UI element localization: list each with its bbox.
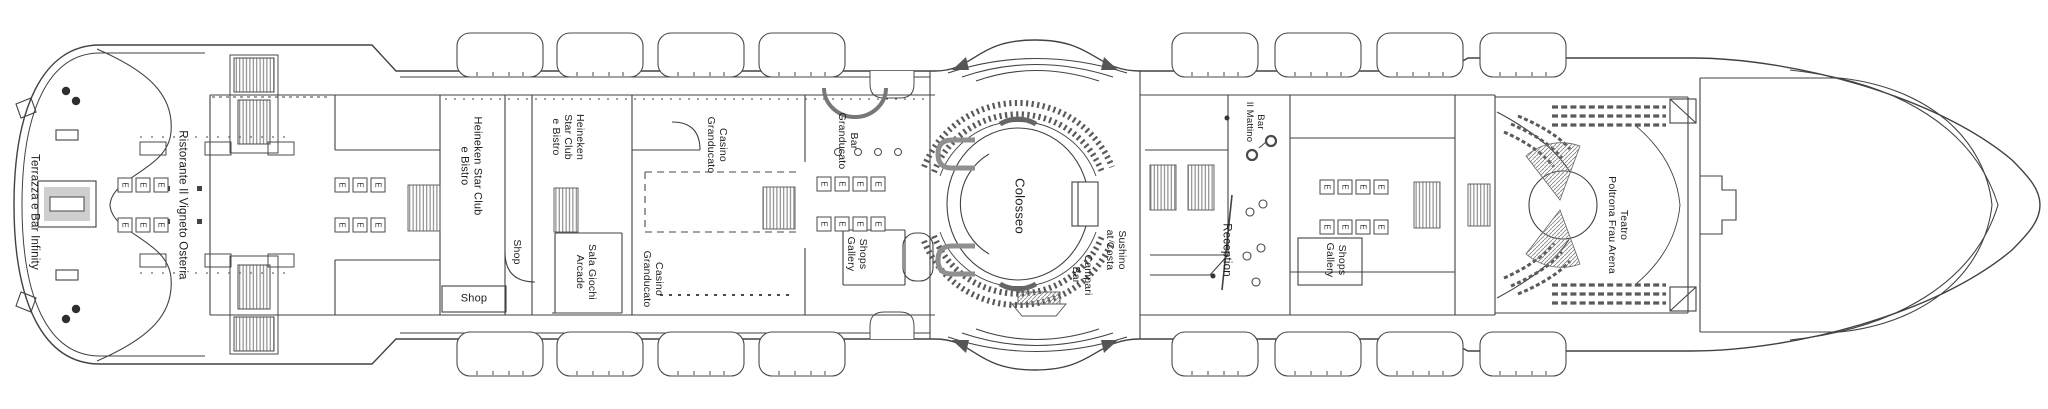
aft-terrace <box>16 49 171 361</box>
restaurant-tables <box>140 137 294 273</box>
lifeboats <box>457 33 1566 376</box>
interior-walls <box>210 71 1495 339</box>
reception-area <box>1211 116 1277 287</box>
deck-plan-drawing: E <box>0 0 2048 409</box>
colosseo-atrium <box>924 57 1127 353</box>
theatre <box>1495 97 1696 313</box>
aft-stair-casings <box>230 55 278 354</box>
deck-plan: E <box>0 0 2048 409</box>
bow-structure <box>1700 70 1998 340</box>
